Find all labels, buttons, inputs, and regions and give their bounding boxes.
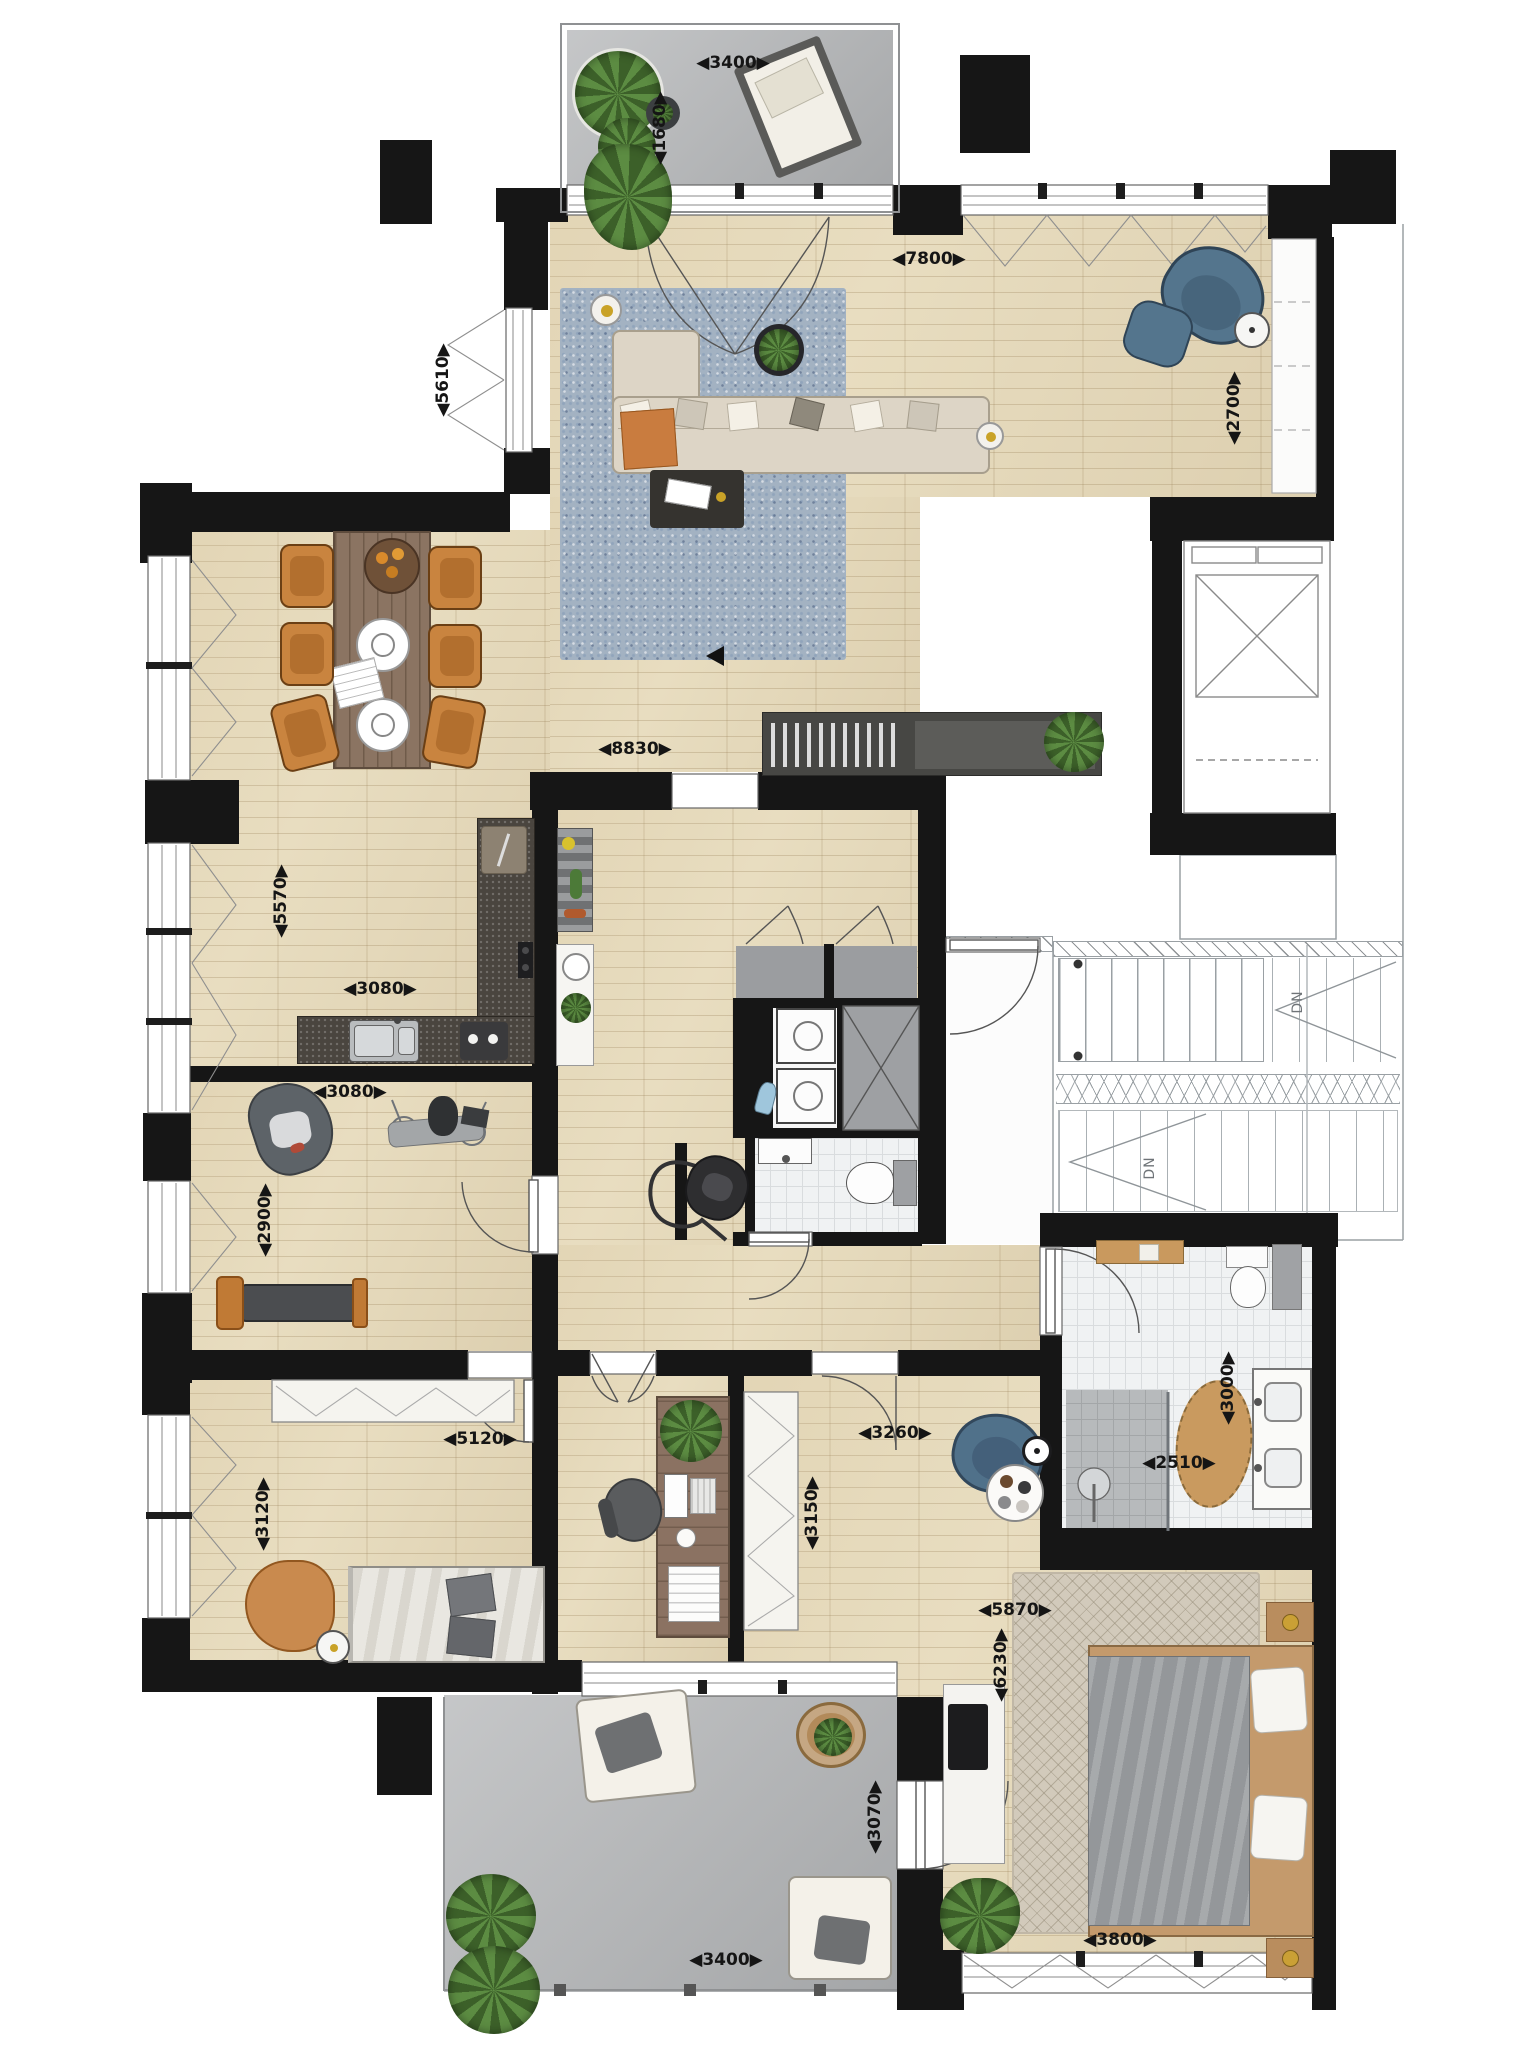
bench-frame: [352, 1278, 368, 1328]
cup: [468, 1034, 478, 1044]
washer-door: [793, 1021, 823, 1051]
table-lamp-icon: [986, 432, 996, 442]
faucet-icon: [1254, 1464, 1262, 1472]
stairs-down-label-upper: DN: [1290, 990, 1306, 1013]
nightstand-icon: [1266, 1938, 1314, 1978]
vanity-icon: [1252, 1368, 1312, 1510]
entry-door-wall-hatch: [946, 936, 1053, 952]
pillow-icon: [446, 1616, 496, 1659]
dim-office-depth: ◀3150▶: [802, 1476, 822, 1549]
flower-pot-icon: [561, 993, 591, 1023]
table-lamp-icon: [1282, 1614, 1299, 1631]
pillow-icon: [446, 1573, 497, 1617]
floor-lamp-icon: [1022, 1436, 1052, 1466]
serving-tray-icon: [986, 1464, 1044, 1522]
fruit-bowl-icon: [364, 538, 420, 594]
sink-icon: [349, 1020, 419, 1062]
pillow-icon: [1250, 1666, 1308, 1734]
pillow-icon: [1250, 1794, 1308, 1862]
vacuum-detail: [699, 1170, 736, 1205]
toilet-icon: [893, 1160, 917, 1206]
lamp-center: [1034, 1448, 1040, 1454]
chair-seat: [282, 707, 328, 758]
dim-bathroom-depth: ◀3000▶: [1218, 1351, 1238, 1424]
bath-shelf: [1272, 1244, 1302, 1310]
hand-basin-icon: [758, 1138, 812, 1164]
sideboard-icon: [556, 944, 594, 1066]
knife-icon: [497, 833, 510, 866]
towel: [1139, 1244, 1159, 1261]
plate-center: [371, 633, 395, 657]
plant-icon: [814, 1718, 852, 1756]
dining-chair-icon: [428, 546, 482, 610]
cup: [1000, 1475, 1013, 1488]
plant-icon: [660, 1400, 722, 1462]
books-icon: [771, 723, 903, 767]
faucet-icon: [782, 1155, 790, 1163]
dryer-door: [793, 1081, 823, 1111]
bed-duvet: [1088, 1656, 1250, 1926]
plant-icon: [448, 1946, 540, 2034]
plant-icon: [1044, 712, 1104, 772]
books-stack-icon: [668, 1566, 720, 1622]
plate-center: [371, 713, 395, 737]
tv-icon: [948, 1704, 988, 1770]
bench-frame: [216, 1276, 244, 1330]
dim-master-entry-width: ◀3260▶: [858, 1423, 931, 1443]
coffee-machine-icon: [460, 1022, 508, 1060]
table-lamp-icon: [1282, 1950, 1299, 1967]
shoe-icon: [564, 909, 586, 918]
dim-balcony-bottom-depth: ◀3070▶: [865, 1780, 885, 1853]
dim-living-width: ◀7800▶: [892, 249, 965, 269]
laptop-keyboard: [690, 1478, 716, 1514]
burner: [522, 947, 529, 954]
cup: [1016, 1500, 1029, 1513]
dim-master-bed-width: ◀3800▶: [1083, 1930, 1156, 1950]
cup: [488, 1034, 498, 1044]
dim-bathroom-width: ◀2510▶: [1142, 1453, 1215, 1473]
table-lamp-icon: [601, 305, 613, 317]
cup: [1018, 1481, 1031, 1494]
toilet-icon: [1226, 1246, 1268, 1268]
cup: [998, 1496, 1011, 1509]
fruit: [392, 548, 404, 560]
sofa-throw-blanket: [620, 408, 678, 470]
elevator-icon: [1184, 541, 1330, 813]
faucet-icon: [1254, 1398, 1262, 1406]
entrance-marker-icon: [706, 646, 724, 666]
dim-bedroom2-width: ◀5120▶: [443, 1429, 516, 1449]
dim-dining-depth: ◀5570▶: [271, 864, 291, 937]
towels-icon: [1096, 1240, 1184, 1264]
floor-plan: ◀3400▶ ◀1680▶ ◀7800▶ ◀2700▶ ◀5610▶ ◀8830…: [0, 0, 1536, 2048]
fruit: [376, 552, 388, 564]
dim-living-depth-left: ◀5610▶: [433, 343, 453, 416]
bag-patch: [268, 1109, 313, 1149]
decor-dot: [716, 492, 726, 502]
lounge-chair-icon: [575, 1688, 697, 1803]
fruit: [386, 566, 398, 578]
floor-lamp-icon: [1234, 312, 1270, 348]
chair-seat: [440, 636, 474, 676]
dim-living-depth-right: ◀2700▶: [1224, 371, 1244, 444]
toilet-icon: [846, 1162, 894, 1204]
floor-closet-1: [736, 946, 824, 1000]
lamp-center: [1249, 327, 1255, 333]
dim-balcony-top-depth: ◀1680▶: [650, 91, 670, 164]
lounge-cushion: [813, 1915, 871, 1966]
plate-icon: [356, 698, 410, 752]
dim-master-depth: ◀6230▶: [991, 1628, 1011, 1701]
sofa-pillow: [906, 400, 939, 431]
mug-icon: [676, 1528, 696, 1548]
coffee-table-icon: [650, 470, 744, 528]
sofa-pillow: [727, 401, 760, 432]
dim-balcony-top-width: ◀3400▶: [696, 53, 769, 73]
chair-seat: [290, 556, 324, 596]
decor-plate-icon: [562, 953, 590, 981]
weight-bench-icon: [240, 1284, 358, 1322]
stair-top-wall-hatch: [1053, 941, 1403, 957]
stair-landing-hatch: [1056, 1074, 1400, 1104]
magazine-icon: [664, 478, 711, 509]
lamp-center: [330, 1644, 338, 1652]
dim-balcony-bottom-width: ◀3400▶: [689, 1950, 762, 1970]
dining-chair-icon: [421, 694, 488, 771]
toilet-icon: [1230, 1266, 1266, 1308]
sofa-pillow: [674, 398, 708, 430]
potted-plant-icon: [754, 324, 804, 376]
cutting-board-icon: [481, 826, 527, 874]
side-table-icon: [590, 294, 622, 326]
stair-run-lower: [1058, 1110, 1398, 1212]
chair-seat: [435, 709, 476, 756]
dining-chair-icon: [428, 624, 482, 688]
nightstand-icon: [1266, 1602, 1314, 1642]
exercise-seat: [428, 1096, 458, 1136]
stair-run-upper: [1058, 958, 1264, 1062]
side-table-icon: [976, 422, 1004, 450]
floor-closet-2: [832, 946, 917, 1000]
dim-master-width: ◀5870▶: [978, 1600, 1051, 1620]
dining-chair-icon: [280, 622, 334, 686]
washer-icon: [776, 1008, 836, 1064]
dim-gym-depth: ◀2900▶: [255, 1183, 275, 1256]
sink-basin: [354, 1025, 394, 1057]
floor-entry: [945, 952, 1053, 1244]
faucet-icon: [394, 1017, 401, 1024]
chair-seat: [440, 558, 474, 598]
burner: [522, 964, 529, 971]
dim-open-plan-width: ◀8830▶: [598, 739, 671, 759]
dim-gym-width: ◀3080▶: [313, 1082, 386, 1102]
rattan-table-icon: [796, 1702, 866, 1768]
lounge-chair-icon: [788, 1876, 892, 1980]
sink-icon: [1264, 1448, 1302, 1488]
floor-lamp-icon: [316, 1630, 350, 1664]
floor-corridor: [556, 1245, 1045, 1376]
sink-basin: [398, 1027, 415, 1055]
stairs-down-label-lower: DN: [1142, 1156, 1158, 1179]
sofa-pillow: [850, 400, 884, 433]
dryer-icon: [776, 1068, 836, 1124]
dim-kitchen-width: ◀3080▶: [343, 979, 416, 999]
plant-icon: [570, 869, 582, 899]
dim-bedroom2-depth: ◀3120▶: [253, 1477, 273, 1550]
laptop-icon: [664, 1474, 720, 1518]
plant-icon: [759, 329, 799, 371]
cooktop-icon: [518, 942, 533, 978]
laptop-screen: [664, 1474, 688, 1518]
dining-chair-icon: [280, 544, 334, 608]
flowers-icon: [562, 837, 575, 850]
sink-icon: [1264, 1382, 1302, 1422]
chair-seat: [290, 634, 324, 674]
hall-rack-icon: [557, 828, 593, 932]
lounge-cushion: [594, 1711, 664, 1775]
